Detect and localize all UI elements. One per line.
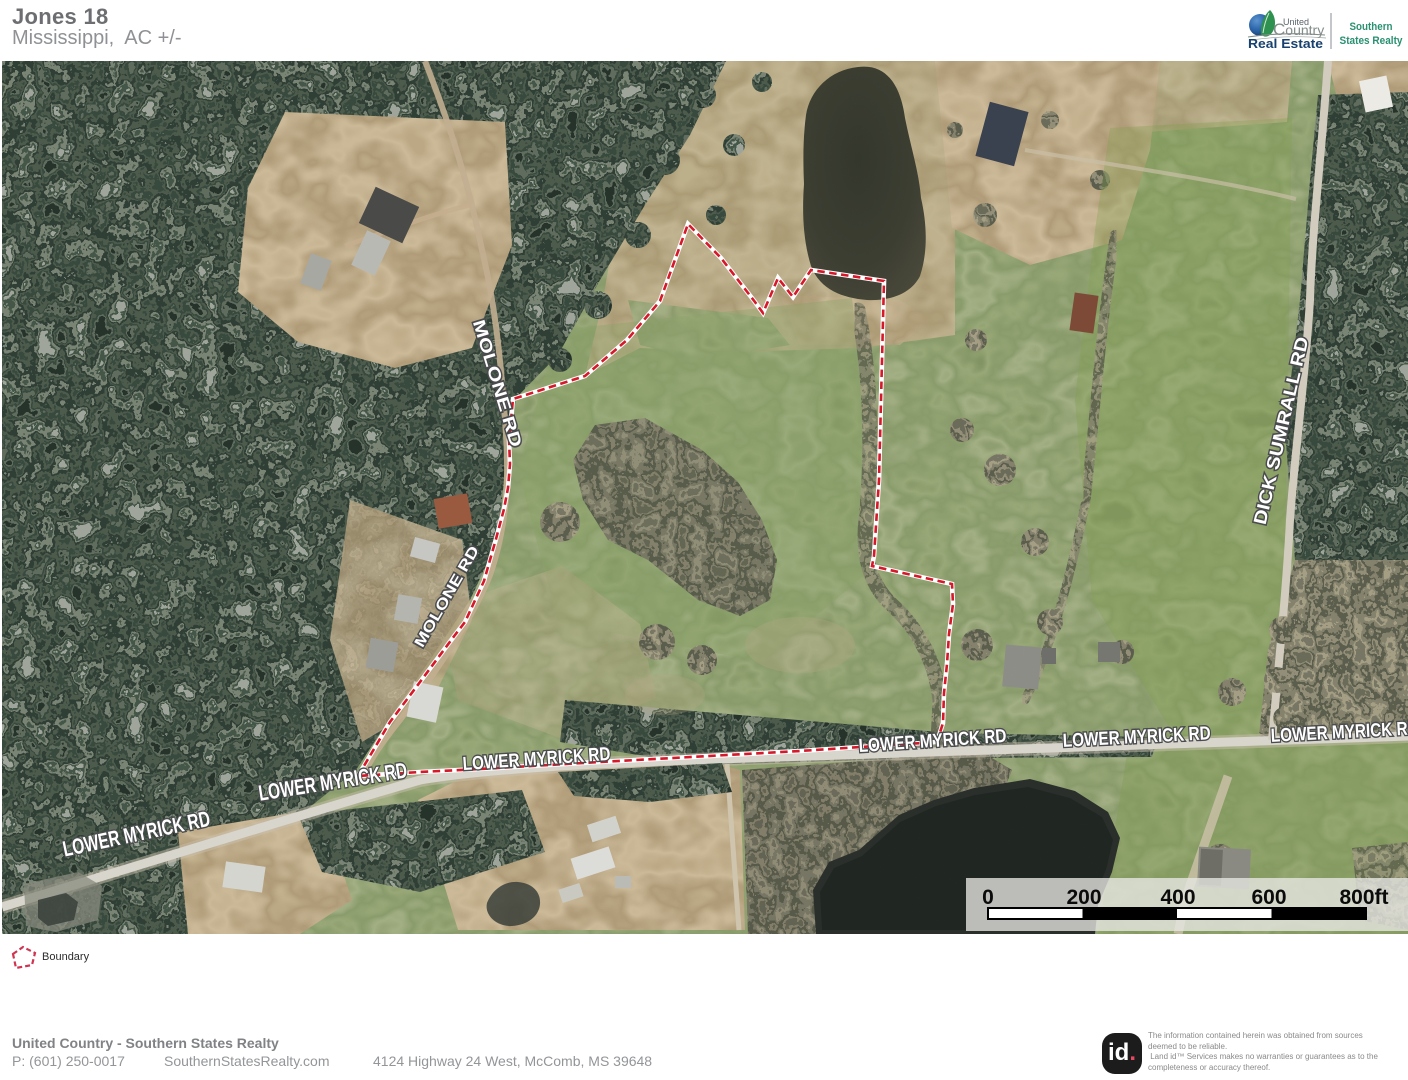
svg-text:States Realty: States Realty bbox=[1340, 35, 1404, 47]
svg-text:400: 400 bbox=[1160, 886, 1195, 909]
svg-text:Southern: Southern bbox=[1350, 21, 1393, 33]
svg-text:600: 600 bbox=[1251, 886, 1286, 909]
svg-text:0: 0 bbox=[982, 886, 994, 909]
svg-text:800ft: 800ft bbox=[1339, 886, 1388, 909]
svg-text:200: 200 bbox=[1066, 886, 1101, 909]
svg-text:Real Estate: Real Estate bbox=[1248, 37, 1323, 51]
